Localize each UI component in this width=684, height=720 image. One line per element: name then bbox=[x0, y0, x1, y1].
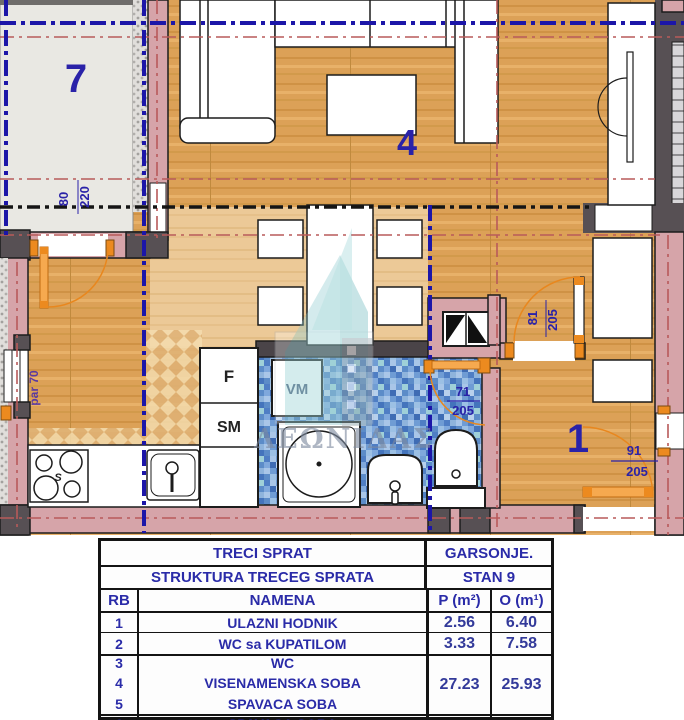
floor-plan: 7 4 1 F SM VM S 80 220 par 70 71 205 81 … bbox=[0, 0, 684, 538]
shoe-rack bbox=[593, 360, 652, 402]
cell-o: 7.58 bbox=[490, 633, 551, 654]
dim-balcony-h: 220 bbox=[77, 186, 92, 208]
dim-balcony-w: 80 bbox=[56, 192, 71, 206]
cell-o: 6.40 bbox=[490, 613, 551, 632]
table-row-structure: STRUKTURA TRECEG SPRATA STAN 9 bbox=[101, 565, 551, 588]
watermark-text: ΛΕΩΝΙΔΑΣ bbox=[253, 424, 434, 455]
cell-name: WC bbox=[139, 655, 426, 672]
cell-rb: 1 bbox=[101, 613, 137, 632]
cell-rb: 2 bbox=[101, 633, 137, 654]
room-label-4: 4 bbox=[397, 122, 417, 163]
dim-room-w: 81 bbox=[525, 311, 540, 325]
stove-label: S bbox=[54, 472, 62, 484]
cell-name: ULAZNI HODNIK bbox=[137, 613, 426, 632]
washbasin bbox=[368, 455, 422, 504]
col-header-name: NAMENA bbox=[137, 590, 426, 611]
room-label-1: 1 bbox=[567, 417, 589, 461]
fridge-label: F bbox=[224, 367, 234, 386]
kitchen-sink bbox=[147, 450, 199, 500]
cell-o-merged: 25.93 bbox=[490, 656, 551, 714]
cell-name: SPAVACA SOBA bbox=[139, 694, 426, 715]
col-header-o: O (m¹) bbox=[490, 590, 551, 611]
table-row: 2 WC sa KUPATILOM 3.33 7.58 bbox=[101, 632, 551, 654]
cell-p: 3.33 bbox=[426, 633, 490, 654]
col-header-rb: RB bbox=[101, 590, 137, 611]
dim-entry-w: 91 bbox=[627, 443, 641, 458]
cell-p-merged: 27.23 bbox=[426, 656, 490, 714]
dim-bath-h: 205 bbox=[452, 403, 474, 418]
hall-closet bbox=[593, 238, 652, 338]
cell-rb: 4 bbox=[101, 672, 137, 694]
table-group-rows: 3 4 5 WC VISENAMENSKA SOBA SPAVACA SOBA … bbox=[101, 654, 551, 714]
room-label-7: 7 bbox=[65, 57, 87, 101]
floorplan-page: 7 4 1 F SM VM S 80 220 par 70 71 205 81 … bbox=[0, 0, 684, 720]
cell-name: VISENAMENSKA SOBA bbox=[139, 672, 426, 694]
structure-title: STRUKTURA TRECEG SPRATA bbox=[101, 567, 424, 588]
radiator bbox=[1, 406, 11, 420]
floor-title: TRECI SPRAT bbox=[101, 541, 424, 565]
col-header-p: P (m²) bbox=[426, 590, 490, 611]
cell-name: SPAVACA SOBA bbox=[137, 716, 426, 720]
apt-type: GARSONJE. bbox=[424, 541, 551, 565]
cell-p: 2.56 bbox=[426, 613, 490, 632]
dim-parapet: par 70 bbox=[27, 370, 41, 406]
cell-rb: 3 bbox=[101, 655, 137, 672]
table-row-floor: TRECI SPRAT GARSONJE. bbox=[101, 541, 551, 565]
apt-no: STAN 9 bbox=[424, 567, 551, 588]
table-row: 1 ULAZNI HODNIK 2.56 6.40 bbox=[101, 611, 551, 632]
dim-bath-w: 71 bbox=[456, 384, 470, 399]
table-header-row: RB NAMENA P (m²) O (m¹) bbox=[101, 588, 551, 611]
area-table: TRECI SPRAT GARSONJE. STRUKTURA TRECEG S… bbox=[98, 538, 554, 720]
dishwasher-label: SM bbox=[217, 419, 241, 436]
cell-name: WC sa KUPATILOM bbox=[137, 633, 426, 654]
dim-entry-h: 205 bbox=[626, 464, 648, 479]
cell-rb: 6 bbox=[101, 716, 137, 720]
toilet bbox=[427, 430, 485, 508]
cell-rb: 5 bbox=[101, 694, 137, 715]
dim-room-h: 205 bbox=[545, 309, 560, 331]
